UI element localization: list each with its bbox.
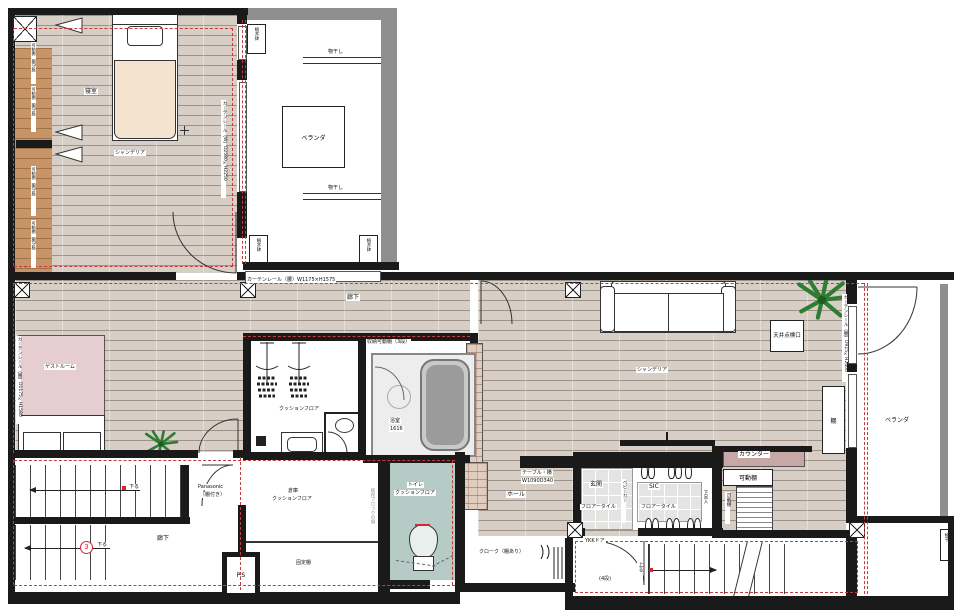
balcony-right-label: ベランダ	[884, 417, 910, 424]
balcony-top-label: ベランダ	[301, 133, 325, 142]
column-marker	[849, 522, 865, 538]
bedroom-chandelier-label: シャンデリア	[114, 150, 146, 156]
door-arc	[328, 432, 348, 454]
block-note-label: 既存ブロックの塀	[369, 487, 374, 561]
wall	[181, 465, 189, 518]
closet-shelf-label: 可動棚（棚5段）	[31, 220, 36, 268]
guest-bench	[18, 415, 105, 455]
stairs-down-lower	[15, 525, 120, 580]
laundry-pole	[303, 193, 383, 200]
wall	[8, 272, 176, 280]
closet-door-symbol	[55, 124, 83, 141]
down-label: 下る	[128, 484, 140, 490]
table	[520, 456, 575, 468]
bath-unit	[371, 353, 476, 457]
hanger-pipe	[284, 342, 314, 408]
stool	[256, 436, 266, 446]
coat-hooks	[534, 543, 568, 581]
toilet-label: トイレ	[407, 482, 424, 488]
bathtub	[420, 359, 470, 451]
bath-door-arc	[375, 367, 405, 401]
floor-plan: 寝室 シャンデリア カーテンレール（W）D2580×H2250 可動棚（棚5段）…	[0, 0, 954, 616]
toilet-bowl	[409, 524, 438, 558]
ceiling-hatch-label: 天井点検口	[773, 333, 801, 340]
wall	[380, 272, 954, 280]
wall	[16, 140, 52, 148]
red-line	[13, 28, 14, 266]
ceiling-hatch-box: 天井点検口	[770, 320, 804, 352]
guest-room-label: ゲストルーム	[44, 364, 76, 370]
corridor-curtain-label: カーテンレール（腰）W1175×H1575	[246, 277, 336, 283]
counter-label: カウンター	[738, 451, 770, 458]
shelf-divider	[243, 541, 378, 543]
column-marker	[13, 16, 37, 42]
wall	[846, 448, 857, 518]
wall	[358, 333, 366, 458]
wall	[8, 517, 190, 524]
table-label: テーブル・横	[521, 470, 553, 476]
toilet-floor-label: クッションフロア	[394, 490, 436, 496]
sofa-cushion	[668, 293, 724, 332]
door-arc	[481, 281, 513, 325]
stair-number-badge: 3	[80, 541, 93, 554]
wall	[948, 516, 954, 602]
toilet-bowl	[335, 418, 354, 433]
toilet-seat-mark	[415, 524, 430, 526]
wall	[455, 583, 575, 592]
wall	[243, 262, 399, 270]
hall-label: ホール	[506, 491, 526, 498]
red-line	[867, 283, 868, 594]
movable-shelf-label: 可動棚	[739, 473, 757, 482]
pipe-space-label: P.S	[237, 572, 245, 579]
red-line	[232, 28, 233, 266]
shelf-label: 棚	[830, 416, 836, 425]
pendant-stem	[666, 432, 668, 440]
column-marker	[567, 522, 583, 538]
ceiling-light-symbol	[180, 126, 189, 135]
wic-floor-label: クッションフロア	[278, 406, 320, 412]
potted-plant	[795, 278, 849, 322]
wall	[8, 450, 198, 458]
corridor-bottom-label: 廊下	[156, 535, 170, 542]
storage-label: 倉庫	[287, 488, 299, 494]
living-curtain-label: カーテンレール（腰）D915×H2400	[842, 294, 847, 382]
window	[848, 306, 857, 364]
red-line	[13, 283, 14, 453]
corridor-label: 廊下	[346, 294, 360, 301]
wall	[846, 538, 857, 598]
red-line	[452, 460, 453, 585]
entrance-tile-label: フロアータイル	[580, 504, 617, 510]
shoe-shelf	[736, 486, 773, 536]
wall	[565, 596, 954, 610]
veranda-wall	[245, 8, 397, 20]
wall	[8, 8, 248, 15]
laundry-pole-label: 物干し	[327, 185, 344, 191]
storage-floor-label: クッションフロア	[271, 496, 313, 502]
red-line	[240, 457, 241, 590]
living-chandelier-label: シャンデリア	[636, 367, 668, 373]
ykk-door-label: YKKドア	[584, 538, 606, 544]
veranda-wall	[940, 284, 948, 516]
bench-cushion	[63, 432, 101, 452]
red-marker	[122, 486, 126, 490]
sic-label: SIC	[648, 483, 660, 490]
column-marker	[565, 282, 581, 298]
down-label: 下る	[96, 542, 108, 548]
guest-bed	[18, 335, 105, 419]
column-marker	[14, 282, 30, 298]
closet-door-symbol	[55, 17, 83, 34]
window	[848, 374, 857, 448]
red-marker	[649, 568, 653, 572]
pipe-space-box: P.S	[222, 552, 260, 598]
shoe-box-label: 下足入	[702, 489, 707, 521]
washbasin-bowl	[287, 437, 317, 452]
bed-duvet	[114, 60, 176, 139]
planter-label: 植木鉢	[365, 237, 370, 253]
closet-shelf-label: 可動棚（棚5段）	[31, 166, 36, 216]
red-line	[575, 592, 858, 593]
bedroom-curtain-label: カーテンレール（W）D2580×H2250	[221, 100, 226, 198]
stairs-up	[648, 544, 799, 594]
wall	[712, 530, 857, 538]
red-line	[14, 28, 233, 29]
laundry-pole-label: 物干し	[327, 49, 344, 55]
wall	[243, 333, 251, 455]
cloak-label: クローク（棚あり）	[478, 549, 525, 555]
red-line	[13, 460, 14, 585]
laundry-pole	[303, 57, 383, 64]
sic-tile-label: フロアータイル	[640, 504, 677, 510]
bed	[112, 13, 178, 141]
closet-shelf-label: 可動棚（棚5段）	[31, 42, 36, 84]
red-line	[575, 541, 576, 592]
veranda-wall	[381, 8, 397, 268]
wall	[573, 452, 723, 468]
bathtub-inner	[426, 365, 464, 445]
sofa	[600, 281, 736, 333]
red-line	[245, 20, 246, 264]
entrance-label: 玄関	[589, 481, 603, 488]
shelf-box: 棚	[822, 386, 845, 454]
wall	[243, 452, 366, 460]
wall	[378, 455, 390, 595]
closet-door-symbol	[55, 146, 83, 163]
hanger-pipe	[252, 342, 282, 408]
planter-label: 植木鉢	[253, 26, 258, 42]
movable-shelf-vlabel: 可動棚	[725, 492, 730, 524]
closet-shelf-label: 可動棚（棚5段）	[31, 86, 36, 132]
maker-note-label: （棚付き）	[199, 492, 226, 498]
wall	[638, 528, 723, 536]
sic-tile	[637, 482, 702, 522]
stairs-down-upper	[15, 465, 181, 517]
bath-size-label: 1616	[389, 426, 404, 432]
red-line	[242, 20, 243, 264]
red-line	[857, 541, 858, 592]
up-label: 上る	[637, 561, 643, 581]
wall	[470, 333, 478, 343]
bath-label: 浴室	[389, 418, 401, 424]
pendant-bar	[620, 440, 715, 446]
maker-label: Panasonic	[197, 484, 224, 490]
planter-box: 植木鉢	[247, 24, 266, 54]
bedroom-door-arc	[173, 212, 237, 274]
bench-cushion	[23, 432, 61, 452]
red-line	[14, 266, 233, 267]
sofa-arm	[600, 286, 615, 332]
wall	[455, 452, 465, 587]
red-line	[14, 585, 455, 586]
guest-curtain-label: カーテンレール（腰）D1175×H1580	[16, 336, 21, 424]
fixed-shelf-label: 固定棚	[295, 560, 312, 566]
wall	[565, 538, 573, 598]
red-line	[14, 460, 455, 461]
wall	[363, 455, 470, 463]
red-line	[243, 336, 470, 337]
wic-shelf-label: 収納可動棚（3段）	[366, 339, 411, 345]
red-line	[575, 541, 858, 542]
planter-box: 植木鉢	[359, 235, 378, 265]
balcony-top-box: ベランダ	[282, 106, 345, 168]
steps-label: (4段)	[598, 576, 612, 582]
table-size-label: W1090D340	[521, 478, 554, 484]
bedroom-label: 寝室	[84, 88, 98, 95]
stroller-label: ベビーカー	[621, 479, 626, 523]
column-marker	[240, 282, 256, 298]
red-line	[864, 283, 865, 594]
bed-pillow	[127, 26, 163, 46]
sofa-cushion	[614, 293, 670, 332]
movable-shelf-box: 可動棚	[723, 469, 773, 486]
door-arc	[199, 419, 239, 454]
planter-box: 植木鉢	[249, 235, 268, 265]
planter-label: 植木鉢	[255, 237, 260, 253]
wall	[712, 460, 722, 536]
red-line	[14, 283, 864, 284]
